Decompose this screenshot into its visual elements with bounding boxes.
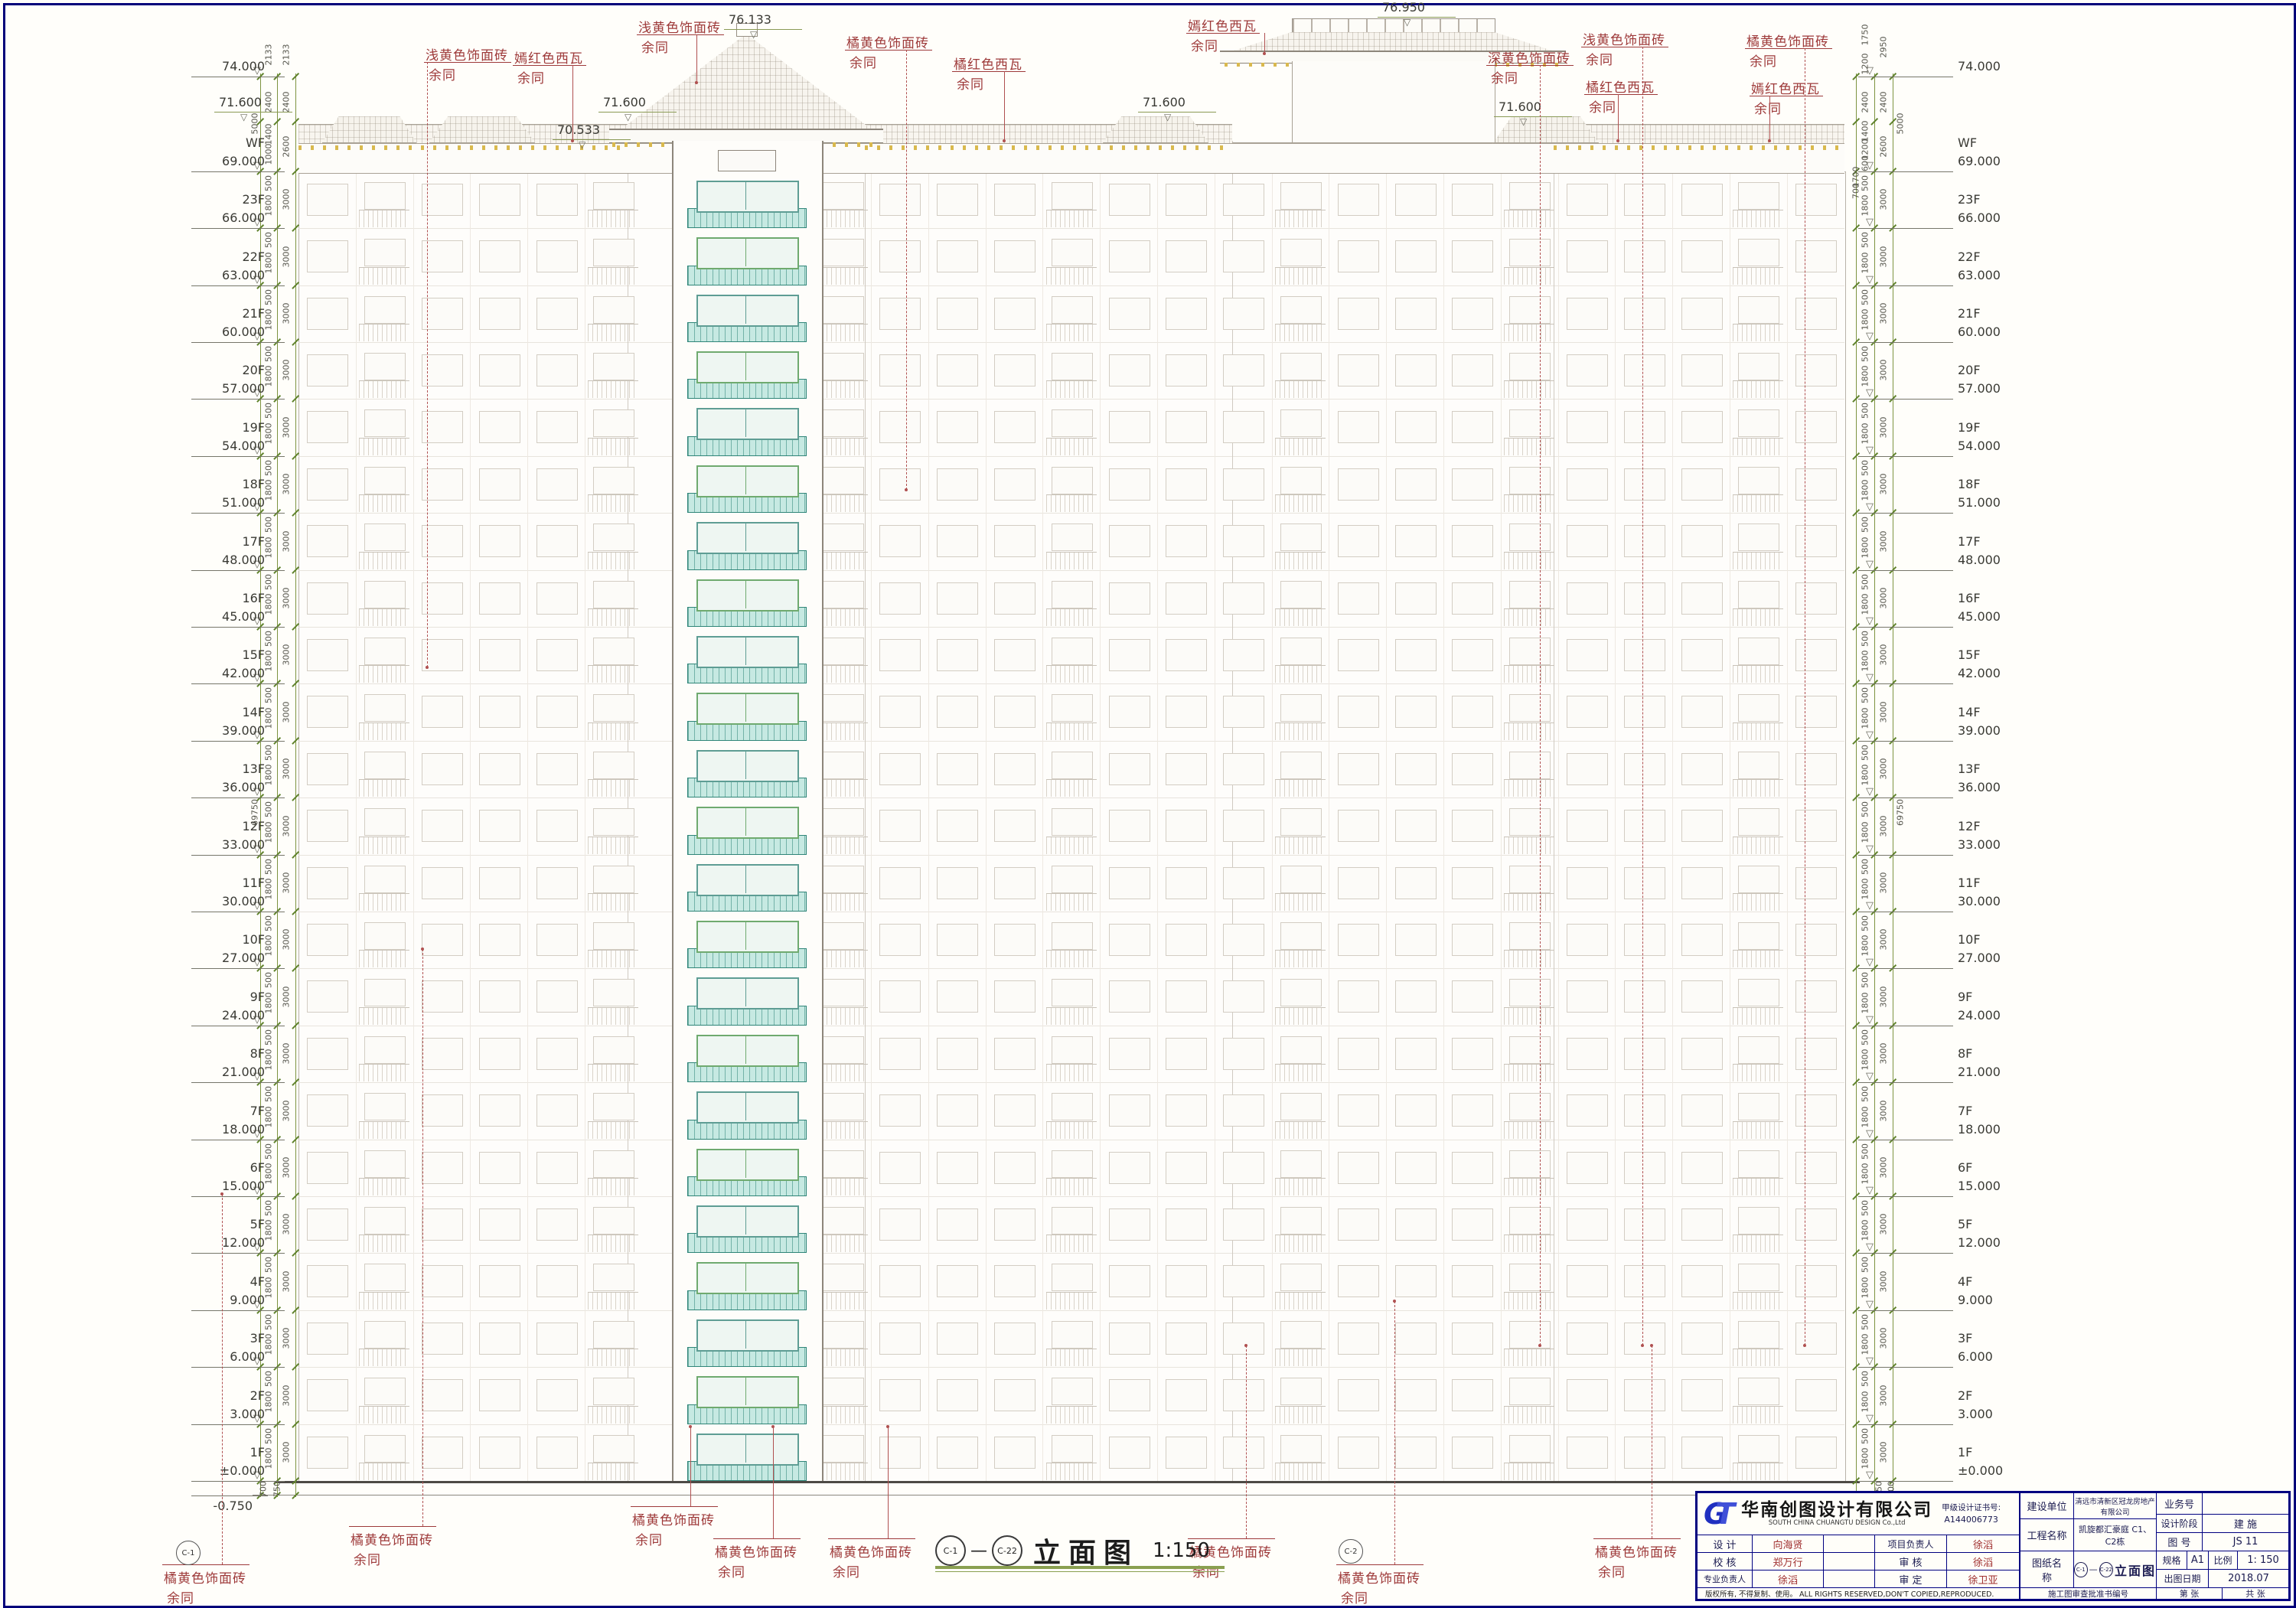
dim-text: 500 xyxy=(1861,286,1870,309)
balcony-rail xyxy=(1733,1007,1783,1025)
level-value: 51.000 xyxy=(115,495,265,510)
level-name: 5F xyxy=(115,1217,265,1231)
level-line xyxy=(1858,1424,1953,1425)
balcony-rail xyxy=(1504,1235,1554,1252)
level-value: 18.000 xyxy=(1958,1122,2080,1137)
level-value: 33.000 xyxy=(1958,837,2080,852)
window xyxy=(593,808,634,836)
window xyxy=(1452,582,1493,615)
dim-text: 3000 xyxy=(1879,866,1889,900)
window xyxy=(1223,810,1264,842)
level-value: 39.000 xyxy=(1958,723,2080,738)
level-triangle: ▽ xyxy=(1866,900,1874,912)
level-line xyxy=(1858,513,1953,514)
window xyxy=(593,296,634,324)
window xyxy=(1624,298,1665,330)
window xyxy=(536,354,578,387)
annotation-leader-line xyxy=(1642,47,1643,1345)
window xyxy=(1795,1437,1837,1469)
balcony-rail xyxy=(1733,1406,1783,1424)
bay-line xyxy=(928,171,929,1481)
size-label: 规格 xyxy=(2157,1551,2187,1570)
window xyxy=(1509,866,1551,893)
level-triangle: ▽ xyxy=(1866,1185,1874,1196)
window xyxy=(1395,240,1437,272)
balcony-rail xyxy=(1046,494,1097,512)
tower-window xyxy=(696,1262,799,1294)
window xyxy=(479,810,520,842)
dim-text: 500 xyxy=(1861,1368,1870,1391)
spot-level-triangle: ▽ xyxy=(1404,17,1411,28)
window xyxy=(1223,753,1264,785)
window xyxy=(1280,523,1322,551)
material-annotation-suffix: 余同 xyxy=(167,1587,194,1606)
dim-text: 2950 xyxy=(1879,24,1889,70)
reviewer-name: 徐滔 xyxy=(1947,1553,2019,1570)
balcony-rail xyxy=(817,552,868,569)
floor-line xyxy=(298,1310,1844,1311)
window xyxy=(937,1038,978,1070)
window xyxy=(1280,409,1322,437)
dim-text: 3000 xyxy=(1879,468,1889,501)
level-triangle: ▽ xyxy=(1866,1413,1874,1424)
annotation-leader-line xyxy=(1246,1345,1247,1538)
window xyxy=(364,409,406,437)
level-name: 13F xyxy=(115,762,265,776)
level-name: 23F xyxy=(115,192,265,207)
window xyxy=(1567,810,1608,842)
window xyxy=(1738,979,1779,1006)
annotation-leader-line xyxy=(427,62,428,667)
level-value: 66.000 xyxy=(1958,210,2080,225)
dim-text: 3000 xyxy=(282,695,292,729)
window xyxy=(1509,409,1551,437)
bay-line xyxy=(1730,171,1730,1481)
window xyxy=(1166,354,1207,387)
window xyxy=(1452,980,1493,1013)
tower-window xyxy=(696,921,799,953)
window xyxy=(1109,1437,1150,1469)
drawing-title-text: 立面图 xyxy=(1033,1531,1139,1570)
level-line xyxy=(191,741,285,742)
window xyxy=(422,411,463,443)
level-line xyxy=(1858,77,1953,77)
window xyxy=(994,810,1035,842)
window xyxy=(536,1265,578,1297)
balcony-rail xyxy=(1046,324,1097,341)
dim-text: 1000 xyxy=(264,132,274,178)
annotation-leader-line xyxy=(572,65,573,141)
balcony-rail xyxy=(1733,324,1783,341)
balcony-rail xyxy=(359,1235,409,1252)
window xyxy=(1395,810,1437,842)
level-name: WF xyxy=(115,135,265,150)
material-annotation-text: 浅黄色饰面砖 xyxy=(638,17,721,36)
tower-window xyxy=(696,1091,799,1124)
window xyxy=(1395,1379,1437,1411)
window xyxy=(593,979,634,1006)
window xyxy=(364,1435,406,1463)
tower-window xyxy=(696,1434,799,1466)
material-annotation-text: 橘黄色饰面砖 xyxy=(830,1541,912,1561)
approval-number-label: 施工图审查批准书编号 xyxy=(2020,1588,2157,1599)
window xyxy=(479,1038,520,1070)
window xyxy=(1223,298,1264,330)
balcony-rail xyxy=(359,1463,409,1480)
window xyxy=(364,694,406,722)
balcony-rail xyxy=(1046,1406,1097,1424)
window xyxy=(994,867,1035,899)
window xyxy=(823,239,864,266)
balcony-rail xyxy=(359,837,409,854)
window xyxy=(1166,525,1207,557)
window xyxy=(307,582,348,615)
annotation-leader-line xyxy=(888,1427,889,1538)
window xyxy=(364,1207,406,1235)
window xyxy=(536,867,578,899)
window xyxy=(937,1323,978,1355)
level-line xyxy=(1858,912,1953,912)
dim-text: 3000 xyxy=(282,866,292,900)
window xyxy=(593,353,634,380)
window xyxy=(994,525,1035,557)
window xyxy=(364,581,406,608)
material-annotation-suffix: 余同 xyxy=(635,1529,663,1548)
bay-line xyxy=(585,171,585,1481)
window xyxy=(1166,582,1207,615)
level-line xyxy=(1858,1196,1953,1197)
window xyxy=(1395,468,1437,501)
level-line xyxy=(191,1367,285,1368)
discipline-lead-label: 专业负责人 xyxy=(1698,1570,1753,1588)
balcony-rail xyxy=(1275,324,1326,341)
window xyxy=(1166,1323,1207,1355)
annotation-leader-line xyxy=(1769,96,1770,141)
balcony-rail xyxy=(1733,779,1783,797)
window xyxy=(593,1378,634,1405)
window xyxy=(479,696,520,728)
window xyxy=(879,1323,921,1355)
cert-number: A144006773 xyxy=(1944,1514,1998,1525)
balcony-rail xyxy=(1046,1121,1097,1139)
material-annotation-suffix: 余同 xyxy=(833,1561,860,1580)
balcony-rail xyxy=(588,608,638,626)
level-name: 1F xyxy=(115,1445,265,1460)
window xyxy=(1109,1038,1150,1070)
balcony-rail xyxy=(359,665,409,683)
balcony-rail xyxy=(1275,438,1326,455)
dim-text: 69750 xyxy=(1896,790,1906,836)
window xyxy=(1738,581,1779,608)
level-name: 2F xyxy=(115,1388,265,1403)
tower-window-mullion xyxy=(745,1035,746,1064)
annotation-leader-line xyxy=(906,50,907,490)
bay-line xyxy=(1558,171,1559,1481)
window xyxy=(1738,1435,1779,1463)
level-triangle: ▽ xyxy=(1866,843,1874,855)
tower-window xyxy=(696,351,799,383)
designer-label: 设 计 xyxy=(1698,1535,1753,1553)
window xyxy=(1052,1207,1093,1235)
window xyxy=(1452,1265,1493,1297)
dim-text: 2400 xyxy=(1879,80,1889,126)
floor-line xyxy=(298,456,1844,457)
cap-roof xyxy=(321,116,417,144)
window xyxy=(1738,808,1779,836)
window xyxy=(1738,866,1779,893)
window xyxy=(1624,411,1665,443)
window xyxy=(1624,468,1665,501)
window xyxy=(422,1094,463,1127)
window xyxy=(1166,1437,1207,1469)
level-line xyxy=(191,855,285,856)
window xyxy=(1567,525,1608,557)
balcony-rail xyxy=(817,1406,868,1424)
window xyxy=(1795,525,1837,557)
window xyxy=(937,753,978,785)
ground-line xyxy=(276,1481,1860,1483)
level-value: 45.000 xyxy=(1958,609,2080,624)
bay-line xyxy=(413,171,414,1481)
annotation-bracket-line xyxy=(828,1538,915,1539)
floor-line xyxy=(298,342,1844,343)
window xyxy=(823,467,864,494)
balcony-rail xyxy=(1275,1292,1326,1310)
window xyxy=(1109,867,1150,899)
annotation-leader-line xyxy=(1264,33,1265,54)
level-value: 6.000 xyxy=(1958,1349,2080,1364)
level-value: 63.000 xyxy=(1958,268,2080,282)
material-annotation-text: 嫣红色西瓦 xyxy=(514,47,583,67)
window xyxy=(1509,1093,1551,1120)
level-line xyxy=(191,683,285,684)
window xyxy=(1567,1152,1608,1184)
level-name: WF xyxy=(1958,135,2080,150)
window xyxy=(364,979,406,1006)
window xyxy=(1624,1152,1665,1184)
annotation-bracket-line xyxy=(1581,47,1668,47)
window xyxy=(1452,924,1493,956)
window xyxy=(1795,1038,1837,1070)
window xyxy=(1795,298,1837,330)
level-triangle: ▽ xyxy=(1866,615,1874,627)
window xyxy=(479,525,520,557)
window xyxy=(994,1152,1035,1184)
balcony-rail xyxy=(1504,837,1554,854)
floor-line xyxy=(298,741,1844,742)
spot-level-line xyxy=(1138,112,1216,113)
window xyxy=(536,810,578,842)
level-line xyxy=(1858,968,1953,969)
spot-level-value: 70.533 xyxy=(557,122,600,137)
window xyxy=(1738,523,1779,551)
window xyxy=(1338,1379,1379,1411)
window xyxy=(1624,696,1665,728)
level-line xyxy=(1858,456,1953,457)
level-triangle: ▽ xyxy=(1866,1299,1874,1310)
bay-line xyxy=(1615,171,1616,1481)
material-annotation-text: 深黄色饰面砖 xyxy=(1488,47,1570,67)
balcony-rail xyxy=(1504,1463,1554,1480)
window xyxy=(1567,1094,1608,1127)
level-name: 14F xyxy=(115,705,265,719)
level-name: 23F xyxy=(1958,192,2080,207)
balcony-rail xyxy=(1275,1007,1326,1025)
balcony-rail xyxy=(1275,1349,1326,1366)
window xyxy=(1338,924,1379,956)
spot-level-value: 71.600 xyxy=(219,95,262,109)
company-header-cell: GT 华南创图设计有限公司 SOUTH CHINA CHUANGTU DESIG… xyxy=(1698,1493,2019,1535)
balcony-rail xyxy=(817,1349,868,1366)
window xyxy=(307,753,348,785)
window xyxy=(1166,240,1207,272)
window xyxy=(879,298,921,330)
window xyxy=(1052,239,1093,266)
window xyxy=(536,582,578,615)
balcony-rail xyxy=(1275,722,1326,740)
window xyxy=(307,1323,348,1355)
window xyxy=(1338,184,1379,216)
balcony-rail xyxy=(1733,267,1783,285)
level-triangle: ▽ xyxy=(1866,1469,1874,1481)
tb-axis-bubble-end: C-22 xyxy=(2099,1562,2113,1577)
level-line xyxy=(1858,1253,1953,1254)
dim-text: 500 xyxy=(264,684,274,707)
spot-level-triangle: ▽ xyxy=(1164,112,1171,122)
window xyxy=(994,1437,1035,1469)
level-line xyxy=(1858,797,1953,798)
window xyxy=(364,467,406,494)
balcony-rail xyxy=(1504,1406,1554,1424)
balcony-rail xyxy=(1733,1121,1783,1139)
window xyxy=(1052,1036,1093,1064)
window xyxy=(593,922,634,950)
window xyxy=(1109,810,1150,842)
balcony-rail xyxy=(817,665,868,683)
tower-window-mullion xyxy=(745,1205,746,1235)
window xyxy=(364,866,406,893)
balcony-rail xyxy=(359,552,409,569)
dim-text: 500 xyxy=(264,856,274,879)
level-line xyxy=(1858,285,1953,286)
annotation-bracket-line xyxy=(952,71,1026,72)
window xyxy=(479,582,520,615)
dim-text: 500 xyxy=(1861,684,1870,707)
window xyxy=(823,694,864,722)
dentil-strip xyxy=(865,145,1232,150)
window xyxy=(364,1264,406,1291)
window xyxy=(1052,694,1093,722)
window xyxy=(1509,752,1551,779)
window xyxy=(1452,1379,1493,1411)
balcony-rail xyxy=(1733,380,1783,398)
level-line xyxy=(1858,855,1953,856)
tower-window-mullion xyxy=(745,1319,746,1349)
level-triangle: ▽ xyxy=(1866,957,1874,968)
level-value: 3.000 xyxy=(115,1407,265,1421)
window xyxy=(1052,808,1093,836)
spot-level-line xyxy=(1378,17,1456,18)
window xyxy=(1509,1036,1551,1064)
balcony-rail xyxy=(588,1349,638,1366)
spot-level-line xyxy=(214,112,292,113)
balcony-rail xyxy=(359,494,409,512)
window xyxy=(1280,1093,1322,1120)
level-value: 12.000 xyxy=(1958,1235,2080,1250)
level-value: 18.000 xyxy=(115,1122,265,1137)
window xyxy=(1795,240,1837,272)
dim-text: 500 xyxy=(264,798,274,821)
window xyxy=(1452,1038,1493,1070)
dim-text: 3000 xyxy=(282,240,292,273)
dim-text: 3000 xyxy=(1879,1264,1889,1298)
balcony-rail xyxy=(817,1463,868,1480)
tower-window-mullion xyxy=(745,351,746,380)
blank-cell xyxy=(1824,1553,1875,1570)
window xyxy=(593,409,634,437)
level-line xyxy=(191,1424,285,1425)
window xyxy=(593,866,634,893)
level-name: 19F xyxy=(115,420,265,435)
level-line xyxy=(191,1196,285,1197)
level-value: 3.000 xyxy=(1958,1407,2080,1421)
tower-window xyxy=(696,295,799,327)
balcony-rail xyxy=(1733,722,1783,740)
window xyxy=(994,924,1035,956)
level-value: 12.000 xyxy=(115,1235,265,1250)
balcony-rail xyxy=(817,494,868,512)
window xyxy=(1509,1264,1551,1291)
window xyxy=(879,1038,921,1070)
window xyxy=(1166,1152,1207,1184)
window xyxy=(1338,696,1379,728)
dim-text: 3000 xyxy=(1879,695,1889,729)
annotation-leader-line xyxy=(1394,1301,1395,1564)
dim-text: 3000 xyxy=(282,980,292,1013)
window xyxy=(1509,353,1551,380)
dim-text: 3000 xyxy=(282,524,292,558)
window xyxy=(823,1321,864,1349)
level-name: 14F xyxy=(1958,705,2080,719)
window xyxy=(1338,298,1379,330)
window xyxy=(479,240,520,272)
window xyxy=(1681,1208,1723,1241)
window xyxy=(1338,240,1379,272)
project-lead-name: 徐滔 xyxy=(1947,1535,2019,1553)
balcony-rail xyxy=(359,722,409,740)
window xyxy=(1567,1038,1608,1070)
level-value: 39.000 xyxy=(115,723,265,738)
window xyxy=(479,924,520,956)
window xyxy=(536,1094,578,1127)
level-name: 4F xyxy=(115,1274,265,1289)
window xyxy=(1052,1378,1093,1405)
window xyxy=(364,922,406,950)
balcony-rail xyxy=(1504,380,1554,398)
window xyxy=(1109,1208,1150,1241)
window xyxy=(422,298,463,330)
window xyxy=(1681,525,1723,557)
window xyxy=(994,1323,1035,1355)
level-name: 22F xyxy=(1958,250,2080,264)
window xyxy=(1567,1265,1608,1297)
level-name: 12F xyxy=(1958,819,2080,833)
window xyxy=(307,1152,348,1184)
window xyxy=(536,468,578,501)
window xyxy=(1280,581,1322,608)
dim-text: 3000 xyxy=(282,1037,292,1071)
window xyxy=(1452,753,1493,785)
